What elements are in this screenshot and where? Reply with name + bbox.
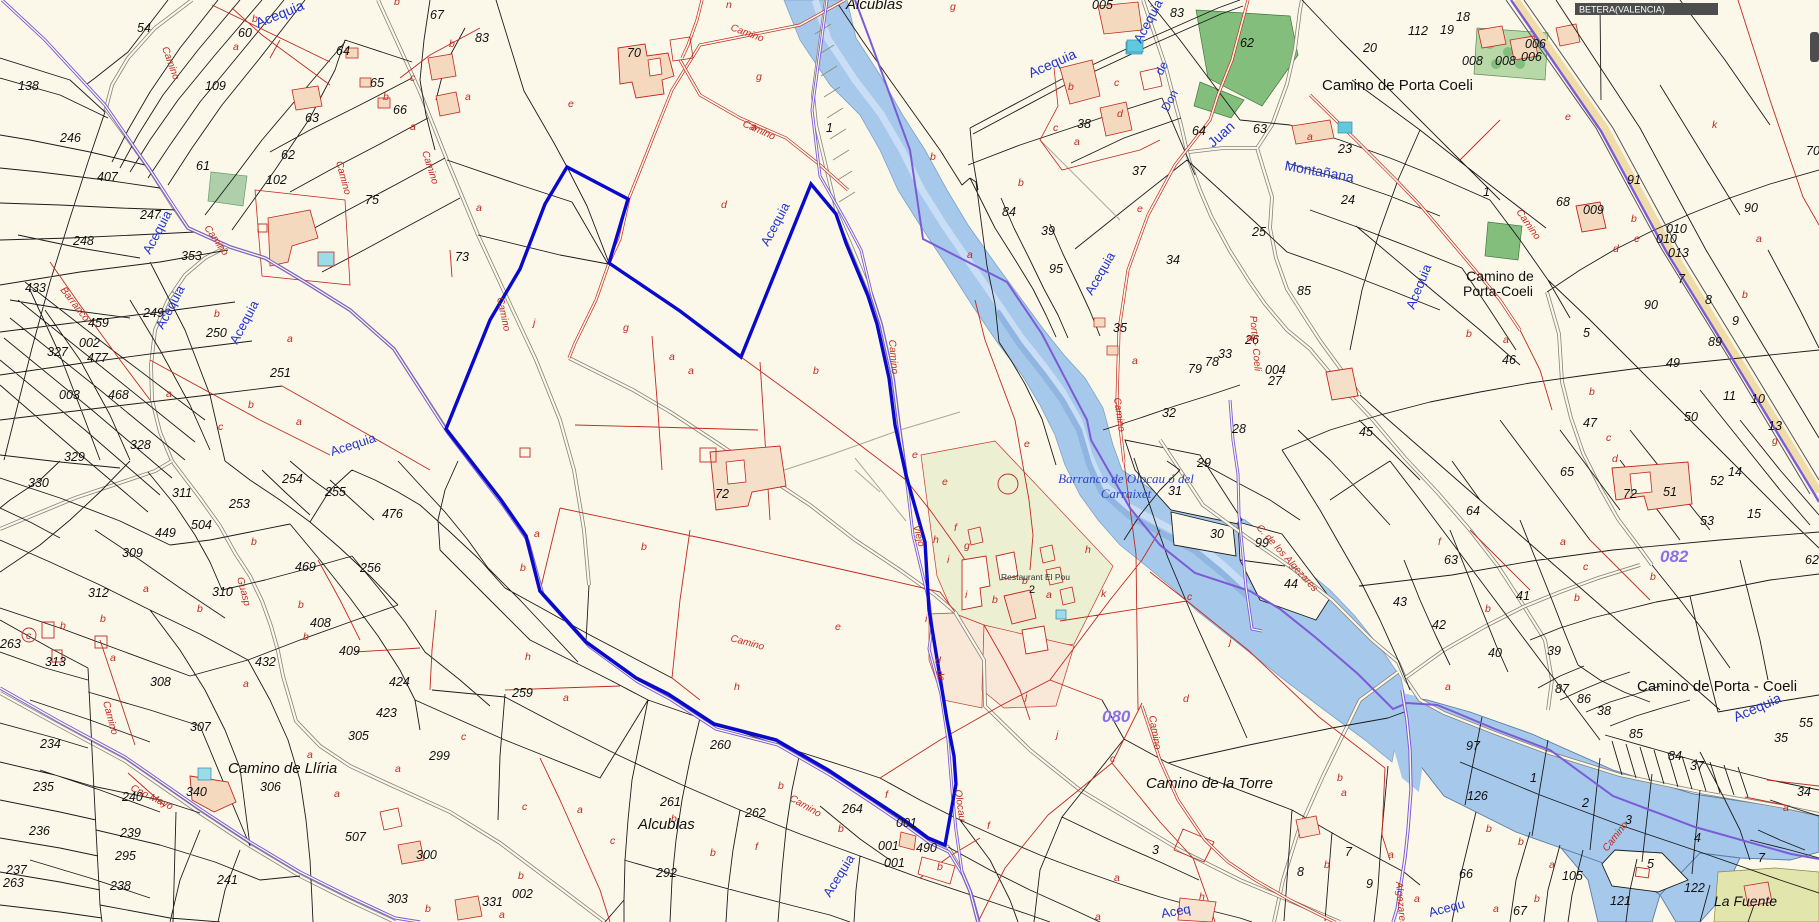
svg-text:b: b (100, 613, 106, 625)
svg-text:55: 55 (1799, 716, 1813, 730)
svg-text:299: 299 (428, 749, 450, 763)
svg-text:507: 507 (345, 830, 367, 844)
svg-text:k: k (1712, 119, 1718, 131)
svg-text:105: 105 (1562, 869, 1583, 883)
svg-text:b: b (778, 780, 784, 792)
svg-text:8: 8 (1297, 865, 1304, 879)
svg-text:31: 31 (1168, 484, 1182, 498)
svg-text:a: a (1503, 334, 1509, 346)
svg-text:102: 102 (266, 173, 287, 187)
svg-text:65: 65 (1560, 465, 1574, 479)
svg-text:305: 305 (348, 729, 369, 743)
svg-text:73: 73 (455, 250, 469, 264)
svg-text:a: a (1756, 233, 1762, 245)
svg-text:109: 109 (205, 79, 226, 93)
svg-text:254: 254 (281, 472, 303, 486)
svg-text:477: 477 (87, 351, 109, 365)
svg-text:476: 476 (382, 507, 403, 521)
svg-text:h: h (525, 651, 531, 663)
svg-text:42: 42 (1432, 618, 1446, 632)
svg-text:002: 002 (79, 336, 100, 350)
svg-text:Alcublas: Alcublas (845, 0, 903, 13)
svg-text:b: b (425, 903, 431, 915)
svg-text:g: g (1772, 435, 1778, 447)
svg-text:La Fuente: La Fuente (1714, 893, 1777, 909)
svg-text:138: 138 (18, 79, 39, 93)
svg-text:g: g (950, 1, 956, 13)
svg-text:004: 004 (1265, 363, 1286, 377)
svg-text:72: 72 (1623, 487, 1637, 501)
svg-text:83: 83 (1170, 6, 1184, 20)
svg-text:46: 46 (1502, 353, 1516, 367)
svg-text:b: b (710, 847, 716, 859)
svg-text:a: a (534, 528, 540, 540)
svg-text:19: 19 (1440, 23, 1454, 37)
svg-text:310: 310 (212, 585, 233, 599)
svg-text:h: h (734, 681, 740, 693)
svg-text:33: 33 (1218, 347, 1232, 361)
svg-text:009: 009 (1583, 203, 1604, 217)
svg-text:a: a (1493, 903, 1499, 915)
svg-text:b: b (383, 91, 389, 103)
svg-text:35: 35 (1113, 321, 1127, 335)
svg-text:e: e (912, 449, 918, 461)
svg-text:c: c (410, 72, 416, 84)
svg-text:b: b (641, 541, 647, 553)
svg-text:259: 259 (511, 686, 533, 700)
svg-text:306: 306 (260, 780, 281, 794)
svg-text:5: 5 (1583, 326, 1590, 340)
svg-text:c: c (522, 801, 528, 813)
svg-text:66: 66 (393, 103, 407, 117)
svg-text:e: e (568, 98, 574, 110)
svg-text:008: 008 (1495, 54, 1516, 68)
svg-text:2: 2 (1581, 796, 1589, 810)
svg-text:20: 20 (1362, 41, 1377, 55)
svg-text:b: b (930, 151, 936, 163)
svg-text:330: 330 (28, 476, 49, 490)
svg-text:c: c (1606, 432, 1612, 444)
svg-text:469: 469 (295, 560, 316, 574)
svg-text:a: a (110, 652, 116, 664)
svg-text:63: 63 (1253, 122, 1267, 136)
svg-text:002: 002 (512, 887, 533, 901)
svg-text:37: 37 (1132, 164, 1147, 178)
svg-text:423: 423 (376, 706, 397, 720)
svg-text:90: 90 (1744, 201, 1758, 215)
svg-text:g: g (964, 540, 970, 552)
svg-text:62: 62 (1240, 36, 1254, 50)
svg-text:38: 38 (1077, 117, 1091, 131)
svg-text:62: 62 (281, 148, 295, 162)
svg-text:256: 256 (359, 561, 381, 575)
svg-text:52: 52 (1710, 474, 1724, 488)
svg-text:h: h (933, 534, 939, 546)
svg-text:83: 83 (475, 31, 489, 45)
svg-text:84: 84 (1668, 749, 1682, 763)
svg-text:Camino de: Camino de (1466, 268, 1534, 284)
svg-text:255: 255 (324, 485, 346, 499)
svg-text:Camino de Llíria: Camino de Llíria (228, 760, 337, 777)
svg-text:45: 45 (1359, 425, 1373, 439)
svg-text:24: 24 (1340, 193, 1355, 207)
svg-text:64: 64 (336, 44, 350, 58)
svg-text:308: 308 (150, 675, 171, 689)
svg-text:126: 126 (1467, 789, 1488, 803)
svg-text:b: b (1631, 213, 1637, 225)
svg-text:504: 504 (191, 518, 212, 532)
svg-text:30: 30 (1210, 527, 1224, 541)
svg-text:64: 64 (1192, 124, 1206, 138)
svg-text:b: b (1486, 823, 1492, 835)
svg-text:b: b (449, 38, 455, 50)
svg-text:253: 253 (228, 497, 250, 511)
svg-text:013: 013 (1668, 246, 1689, 260)
svg-text:b: b (214, 308, 220, 320)
svg-text:60: 60 (238, 26, 252, 40)
svg-text:95: 95 (1049, 262, 1063, 276)
svg-text:91: 91 (1627, 173, 1641, 187)
svg-text:313: 313 (45, 655, 66, 669)
svg-text:Camino de Porta Coeli: Camino de Porta Coeli (1322, 77, 1473, 94)
svg-text:082: 082 (1660, 547, 1689, 566)
svg-text:a: a (1132, 355, 1138, 367)
svg-text:303: 303 (387, 892, 408, 906)
svg-text:25: 25 (1251, 225, 1266, 239)
svg-text:Camino de Porta - Coeli: Camino de Porta - Coeli (1637, 678, 1797, 695)
svg-text:433: 433 (25, 281, 46, 295)
svg-text:79: 79 (1188, 362, 1202, 376)
svg-text:c: c (1114, 77, 1120, 89)
svg-text:49: 49 (1666, 356, 1680, 370)
svg-text:261: 261 (659, 795, 681, 809)
svg-text:63: 63 (1444, 553, 1458, 567)
svg-text:34: 34 (1166, 253, 1180, 267)
svg-text:a: a (243, 678, 249, 690)
svg-text:246: 246 (59, 131, 81, 145)
svg-text:001: 001 (896, 816, 917, 830)
svg-text:122: 122 (1684, 881, 1705, 895)
svg-text:e: e (942, 476, 948, 488)
svg-text:a: a (1549, 859, 1555, 871)
svg-text:b: b (1324, 859, 1330, 871)
svg-text:112: 112 (1408, 24, 1428, 38)
svg-text:468: 468 (108, 388, 129, 402)
svg-text:b: b (60, 620, 66, 632)
svg-text:1: 1 (826, 121, 833, 135)
svg-text:35: 35 (1774, 731, 1788, 745)
svg-text:67: 67 (1513, 904, 1528, 918)
svg-text:7: 7 (1678, 272, 1686, 286)
svg-text:70: 70 (627, 46, 641, 60)
svg-text:a: a (476, 202, 482, 214)
svg-text:85: 85 (1629, 727, 1643, 741)
svg-text:006: 006 (1525, 37, 1546, 51)
svg-text:15: 15 (1747, 507, 1761, 521)
svg-text:a: a (334, 788, 340, 800)
svg-text:424: 424 (389, 675, 410, 689)
svg-text:459: 459 (88, 316, 109, 330)
svg-text:63: 63 (305, 111, 319, 125)
svg-text:c: c (1110, 753, 1116, 765)
svg-text:64: 64 (1466, 504, 1480, 518)
svg-text:408: 408 (310, 616, 331, 630)
svg-text:b: b (838, 823, 844, 835)
svg-text:490: 490 (916, 841, 937, 855)
svg-text:b: b (303, 631, 309, 643)
svg-text:307: 307 (190, 720, 212, 734)
svg-text:a: a (1095, 911, 1101, 922)
svg-text:a: a (410, 121, 416, 133)
svg-text:n: n (726, 0, 732, 11)
svg-text:97: 97 (1466, 739, 1481, 753)
svg-text:a: a (1414, 893, 1420, 905)
svg-text:a: a (143, 583, 149, 595)
svg-text:10: 10 (1751, 392, 1765, 406)
svg-text:32: 32 (1162, 406, 1176, 420)
svg-text:h: h (1199, 891, 1205, 903)
svg-text:90: 90 (1644, 298, 1658, 312)
svg-text:b: b (813, 365, 819, 377)
svg-text:263: 263 (2, 876, 24, 890)
svg-text:78: 78 (1205, 355, 1219, 369)
svg-text:Restaurant El Pou: Restaurant El Pou (1001, 572, 1070, 582)
svg-text:003: 003 (59, 388, 80, 402)
svg-text:Porta-Coeli: Porta-Coeli (1463, 283, 1533, 299)
svg-text:1: 1 (1483, 185, 1490, 199)
svg-text:a: a (1074, 136, 1080, 148)
svg-text:85: 85 (1297, 284, 1311, 298)
svg-text:53: 53 (1700, 514, 1714, 528)
svg-text:75: 75 (365, 193, 379, 207)
svg-text:353: 353 (181, 249, 202, 263)
svg-text:b: b (1018, 177, 1024, 189)
svg-text:432: 432 (255, 655, 276, 669)
svg-text:a: a (166, 388, 172, 400)
svg-text:5: 5 (1647, 857, 1654, 871)
svg-text:1: 1 (1530, 771, 1537, 785)
svg-text:61: 61 (196, 159, 210, 173)
svg-text:c: c (610, 835, 616, 847)
svg-text:34: 34 (1797, 785, 1811, 799)
svg-text:001: 001 (884, 856, 905, 870)
svg-text:c: c (1187, 591, 1193, 603)
svg-text:236: 236 (28, 824, 50, 838)
svg-text:234: 234 (39, 737, 61, 751)
svg-text:b: b (520, 562, 526, 574)
svg-text:311: 311 (172, 486, 192, 500)
svg-text:g: g (623, 322, 629, 334)
svg-text:b: b (248, 399, 254, 411)
svg-text:62: 62 (1805, 553, 1819, 567)
svg-text:327: 327 (47, 345, 69, 359)
svg-text:67: 67 (430, 8, 445, 22)
svg-text:g: g (756, 71, 762, 83)
svg-text:329: 329 (64, 450, 85, 464)
svg-text:328: 328 (130, 438, 151, 452)
svg-text:a: a (499, 909, 505, 921)
svg-text:a: a (1445, 681, 1451, 693)
svg-text:b: b (937, 861, 943, 873)
svg-text:a: a (577, 804, 583, 816)
svg-text:b: b (1534, 893, 1540, 905)
svg-text:263: 263 (0, 637, 21, 651)
svg-text:84: 84 (1002, 205, 1016, 219)
svg-text:50: 50 (1684, 410, 1698, 424)
svg-text:008: 008 (1462, 54, 1483, 68)
svg-text:241: 241 (216, 873, 238, 887)
svg-text:e: e (1565, 111, 1571, 123)
svg-text:47: 47 (1583, 416, 1598, 430)
svg-text:a: a (1388, 849, 1394, 861)
svg-text:309: 309 (122, 546, 143, 560)
svg-text:b: b (394, 0, 400, 8)
svg-text:39: 39 (1547, 644, 1561, 658)
svg-text:BETERA(VALENCIA): BETERA(VALENCIA) (1579, 5, 1665, 15)
svg-text:54: 54 (137, 21, 151, 35)
svg-text:89: 89 (1708, 335, 1722, 349)
svg-text:c: c (26, 630, 32, 642)
svg-text:b: b (1518, 836, 1524, 848)
svg-text:b: b (298, 599, 304, 611)
svg-text:a: a (1046, 589, 1052, 601)
svg-text:238: 238 (109, 879, 131, 893)
svg-text:a: a (1560, 536, 1566, 548)
svg-text:c: c (1583, 561, 1589, 573)
svg-text:7002: 7002 (1806, 144, 1819, 158)
svg-text:11: 11 (1723, 389, 1736, 403)
svg-text:e: e (1024, 438, 1030, 450)
svg-text:44: 44 (1284, 577, 1298, 591)
svg-text:a: a (1341, 787, 1347, 799)
svg-text:28: 28 (1231, 422, 1246, 436)
svg-text:66: 66 (1459, 867, 1473, 881)
svg-text:a: a (395, 763, 401, 775)
svg-text:4: 4 (1694, 831, 1701, 845)
svg-text:340: 340 (186, 785, 207, 799)
svg-text:40: 40 (1488, 646, 1502, 660)
svg-text:e: e (1634, 233, 1640, 245)
svg-text:080: 080 (1102, 707, 1131, 726)
svg-text:b: b (1068, 81, 1074, 93)
svg-text:a: a (967, 249, 973, 261)
svg-text:72: 72 (715, 487, 729, 501)
svg-text:b: b (1337, 772, 1343, 784)
svg-text:006: 006 (1521, 50, 1542, 64)
svg-text:b: b (518, 870, 524, 882)
svg-text:292: 292 (655, 866, 677, 880)
svg-text:a: a (1783, 802, 1789, 814)
svg-text:9: 9 (1732, 314, 1739, 328)
svg-text:264: 264 (841, 802, 863, 816)
svg-text:37: 37 (1690, 759, 1705, 773)
svg-text:121: 121 (1610, 894, 1631, 908)
svg-text:331: 331 (482, 895, 503, 909)
svg-text:2: 2 (1029, 584, 1035, 596)
svg-text:e: e (1137, 203, 1143, 215)
svg-text:Camino de la Torre: Camino de la Torre (1146, 775, 1273, 792)
svg-text:b: b (992, 594, 998, 606)
svg-text:295: 295 (114, 849, 136, 863)
svg-text:29: 29 (1196, 456, 1211, 470)
svg-text:235: 235 (32, 780, 54, 794)
svg-text:41: 41 (1516, 589, 1530, 603)
svg-text:k: k (1101, 588, 1107, 600)
svg-text:23: 23 (1337, 142, 1352, 156)
svg-text:9: 9 (1366, 877, 1373, 891)
svg-text:68: 68 (1556, 195, 1570, 209)
svg-text:b: b (1742, 289, 1748, 301)
svg-text:237: 237 (5, 863, 28, 877)
svg-text:010: 010 (1656, 232, 1677, 246)
svg-text:a: a (1114, 872, 1120, 884)
svg-text:b: b (1574, 592, 1580, 604)
svg-text:001: 001 (878, 839, 899, 853)
svg-text:Barranco de Olocau ó del: Barranco de Olocau ó del (1058, 471, 1194, 486)
svg-text:c: c (461, 731, 467, 743)
svg-text:h: h (1085, 544, 1091, 556)
svg-text:b: b (197, 603, 203, 615)
svg-text:b: b (1650, 571, 1656, 583)
svg-text:87: 87 (1555, 682, 1570, 696)
svg-text:18: 18 (1456, 10, 1470, 24)
svg-text:260: 260 (709, 738, 731, 752)
svg-text:409: 409 (339, 644, 360, 658)
svg-text:38: 38 (1597, 704, 1611, 718)
svg-text:a: a (465, 91, 471, 103)
svg-text:a: a (287, 333, 293, 345)
svg-text:3: 3 (1152, 843, 1159, 857)
svg-text:Alcublas: Alcublas (637, 816, 695, 833)
svg-text:312: 312 (88, 586, 109, 600)
svg-text:300: 300 (416, 848, 437, 862)
svg-text:b: b (1589, 386, 1595, 398)
svg-text:248: 248 (72, 234, 94, 248)
svg-text:a: a (1307, 131, 1313, 143)
svg-text:7: 7 (1345, 845, 1353, 859)
svg-text:c: c (218, 421, 224, 433)
svg-text:e: e (835, 621, 841, 633)
svg-text:a: a (233, 41, 239, 53)
svg-text:239: 239 (119, 826, 141, 840)
svg-text:43: 43 (1393, 595, 1407, 609)
svg-text:39: 39 (1041, 224, 1055, 238)
svg-text:005: 005 (1092, 0, 1113, 12)
svg-text:51: 51 (1663, 485, 1677, 499)
svg-text:c: c (1053, 122, 1059, 134)
svg-text:86: 86 (1577, 692, 1591, 706)
svg-text:a: a (669, 351, 675, 363)
svg-text:7: 7 (1758, 851, 1766, 865)
svg-text:65: 65 (370, 76, 384, 90)
svg-text:a: a (296, 416, 302, 428)
svg-text:Carraixet: Carraixet (1101, 486, 1152, 501)
svg-text:250: 250 (205, 326, 227, 340)
svg-text:b: b (1485, 603, 1491, 615)
svg-text:b: b (251, 536, 257, 548)
svg-text:407: 407 (97, 170, 119, 184)
svg-text:14: 14 (1728, 465, 1742, 479)
svg-text:8: 8 (1705, 293, 1712, 307)
svg-text:a: a (688, 365, 694, 377)
svg-text:b: b (1466, 328, 1472, 340)
svg-text:449: 449 (155, 526, 176, 540)
svg-text:a: a (563, 692, 569, 704)
svg-text:251: 251 (269, 366, 291, 380)
svg-text:262: 262 (744, 806, 766, 820)
svg-text:13: 13 (1768, 419, 1782, 433)
